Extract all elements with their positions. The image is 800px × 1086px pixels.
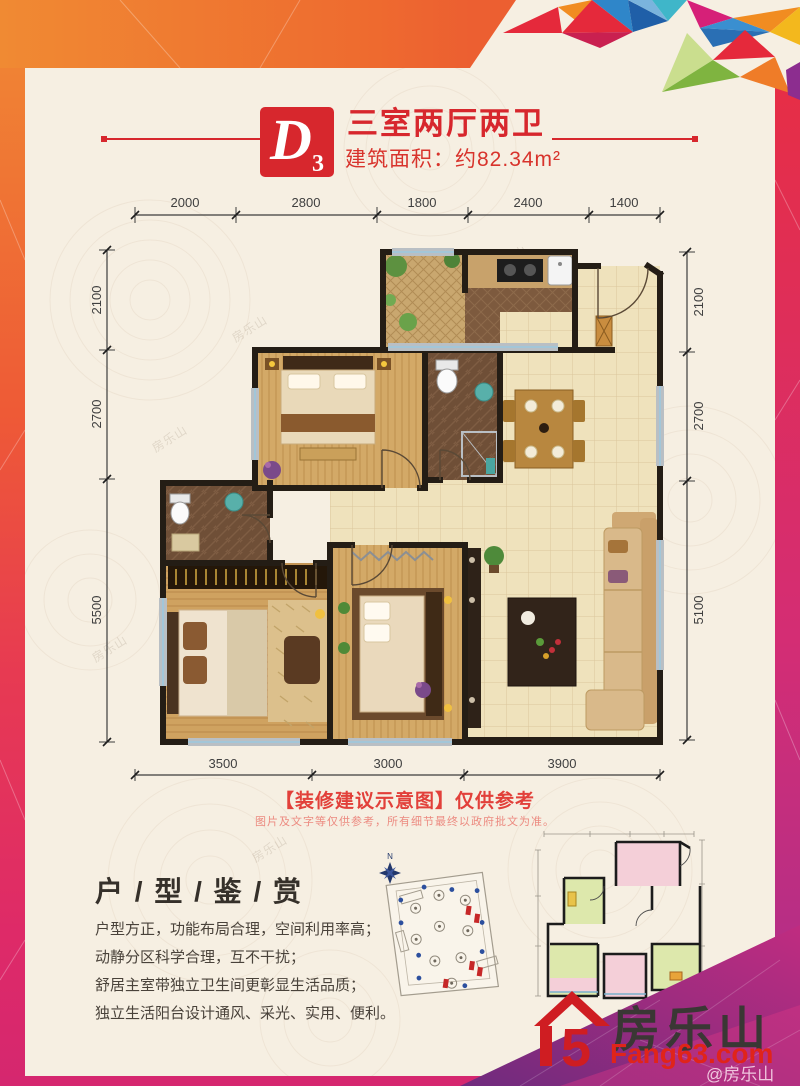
- decorative-triangles: [480, 0, 800, 120]
- north-compass: N: [379, 852, 401, 884]
- social-handle: @房乐山: [706, 1060, 774, 1085]
- north-label: N: [387, 852, 393, 861]
- dining-furniture: [503, 390, 585, 468]
- logo-house-icon: 5: [530, 984, 614, 1070]
- floor-plan-canvas: [0, 0, 800, 800]
- logo-glyph: 5: [561, 1018, 591, 1070]
- poster-page: D3 三室两厅两卫 建筑面积：约82.34m²: [0, 0, 800, 1086]
